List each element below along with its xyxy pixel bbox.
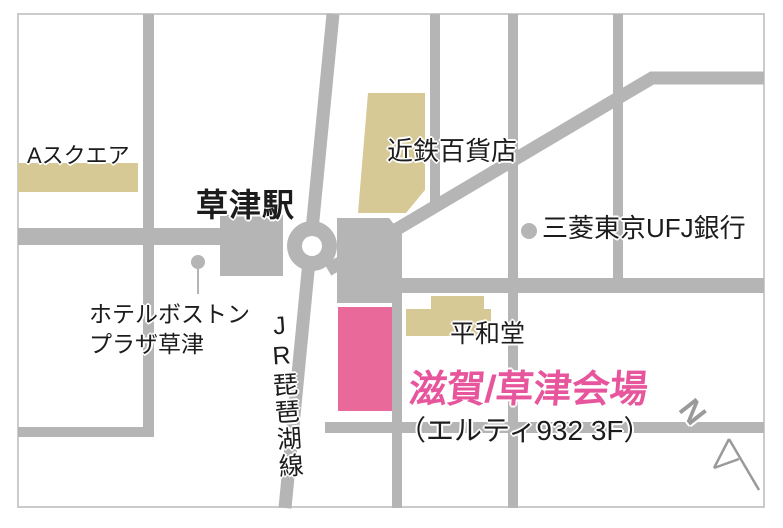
- bank-marker-dot: [521, 223, 537, 239]
- station-roundabout-center: [302, 236, 322, 256]
- road-vertical-east: [613, 14, 623, 293]
- label-a-square: Aスクエア: [27, 142, 130, 171]
- station-east-building: [337, 218, 402, 303]
- access-map: Aスクエア 草津駅 近鉄百貨店 三菱東京UFJ銀行 ホテルボストン プラザ草津 …: [0, 0, 783, 528]
- label-kusatsu-station: 草津駅: [196, 185, 295, 227]
- label-hotel-boston-plaza: ホテルボストン プラザ草津: [89, 299, 250, 359]
- label-venue-shiga-kusatsu: 滋賀/草津会場: [407, 366, 650, 415]
- road-vertical-venue-east: [392, 295, 402, 508]
- hotel-marker-dot: [191, 255, 205, 269]
- road-horizontal-middle: [395, 278, 764, 293]
- north-arrow-shaft: [729, 439, 759, 490]
- label-kintetsu-department-store: 近鉄百貨店: [387, 135, 517, 169]
- map-graphics: [0, 0, 783, 528]
- label-mitsubishi-ufj-bank: 三菱東京UFJ銀行: [542, 212, 746, 246]
- venue-building: [338, 307, 392, 411]
- north-arrow: [714, 439, 759, 490]
- road-vertical-center1: [430, 14, 440, 210]
- road-station-west: [18, 228, 221, 245]
- road-corner-southwest: [18, 427, 154, 437]
- road-vertical-west: [143, 14, 154, 437]
- label-heiwado: 平和堂: [450, 318, 525, 351]
- label-venue-floor: （エルティ932 3F）: [398, 413, 652, 449]
